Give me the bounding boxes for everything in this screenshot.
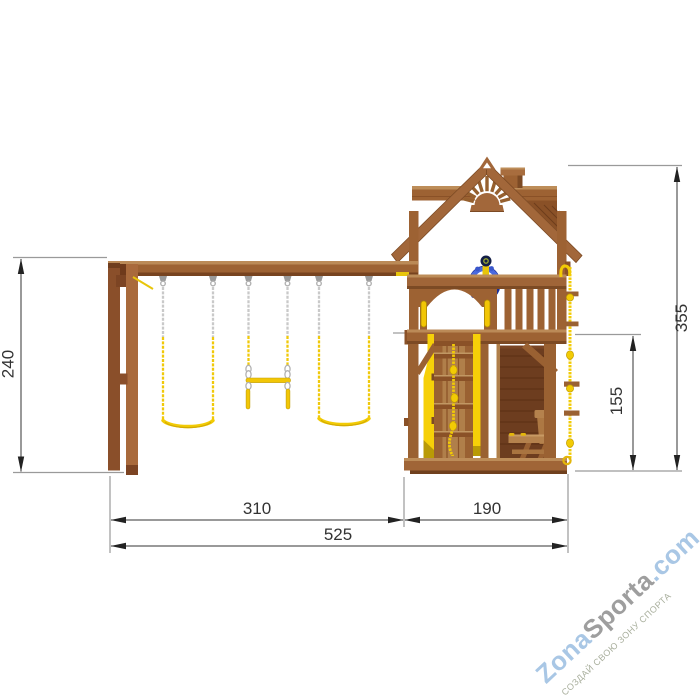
svg-text:240: 240 <box>0 350 18 378</box>
svg-text:525: 525 <box>324 525 352 544</box>
svg-text:355: 355 <box>672 304 691 332</box>
svg-text:310: 310 <box>243 499 271 518</box>
svg-text:190: 190 <box>473 499 501 518</box>
svg-text:155: 155 <box>607 387 626 415</box>
